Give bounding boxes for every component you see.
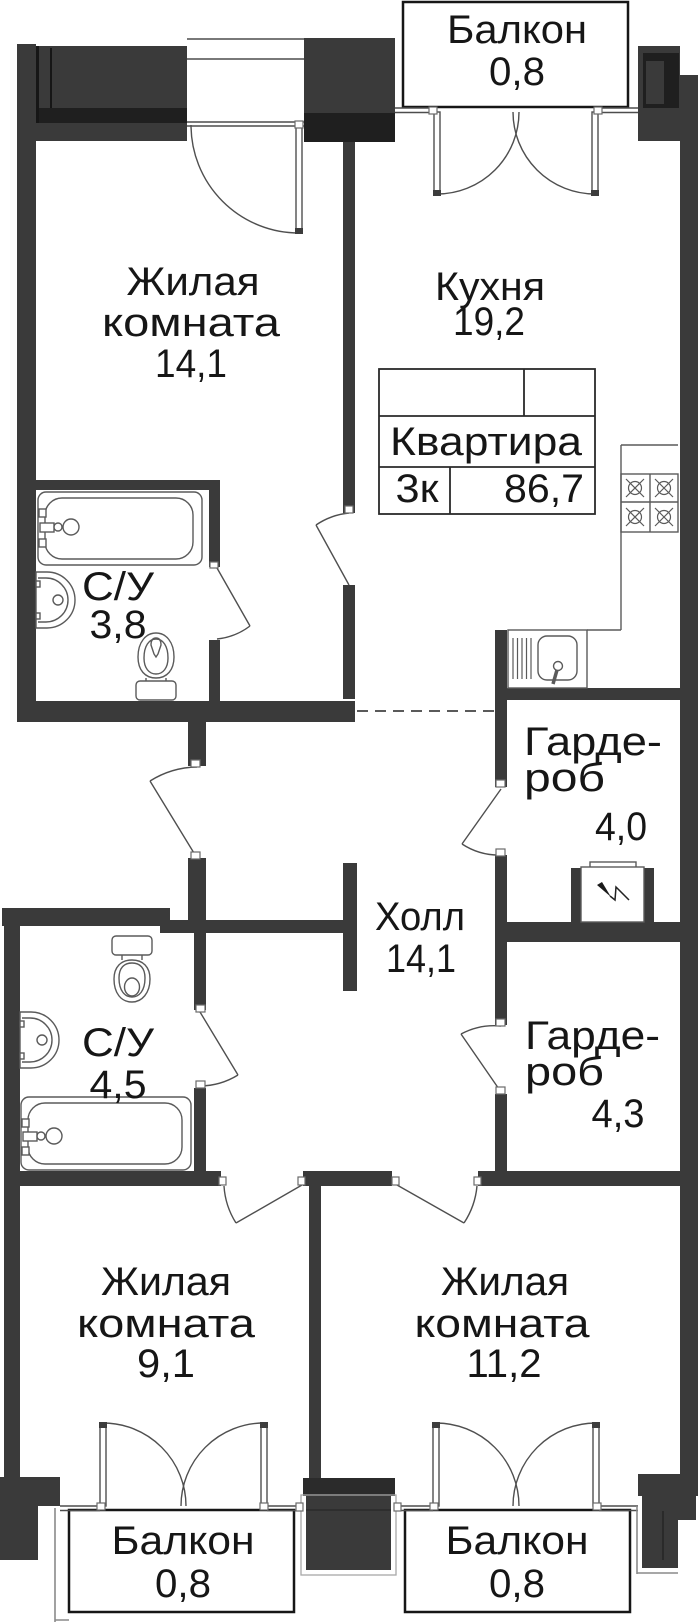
svg-text:Балкон: Балкон (447, 8, 587, 52)
svg-text:0,8: 0,8 (155, 1562, 211, 1606)
svg-text:3,8: 3,8 (90, 603, 147, 647)
svg-text:Холл: Холл (375, 895, 465, 939)
svg-text:14,1: 14,1 (155, 342, 227, 386)
svg-text:С/У: С/У (82, 1021, 155, 1065)
svg-text:4,0: 4,0 (595, 805, 647, 849)
svg-text:0,8: 0,8 (489, 50, 545, 94)
svg-text:0,8: 0,8 (489, 1562, 545, 1606)
svg-text:комната: комната (102, 301, 281, 345)
svg-text:19,2: 19,2 (453, 300, 525, 344)
svg-text:4,5: 4,5 (90, 1063, 147, 1107)
svg-text:комната: комната (77, 1302, 256, 1346)
svg-text:11,2: 11,2 (467, 1342, 542, 1386)
svg-text:Балкон: Балкон (112, 1519, 255, 1563)
svg-text:Жилая: Жилая (441, 1260, 569, 1304)
svg-text:роб: роб (525, 1050, 604, 1094)
svg-text:14,1: 14,1 (386, 937, 456, 981)
svg-text:Жилая: Жилая (127, 260, 260, 304)
svg-text:9,1: 9,1 (137, 1342, 195, 1386)
svg-text:Квартира: Квартира (390, 420, 583, 464)
svg-text:86,7: 86,7 (504, 467, 584, 511)
svg-text:3к: 3к (396, 467, 440, 511)
svg-text:комната: комната (415, 1302, 591, 1346)
svg-text:Балкон: Балкон (446, 1519, 589, 1563)
svg-text:Жилая: Жилая (101, 1260, 231, 1304)
svg-text:роб: роб (524, 756, 605, 800)
svg-text:4,3: 4,3 (592, 1092, 645, 1136)
